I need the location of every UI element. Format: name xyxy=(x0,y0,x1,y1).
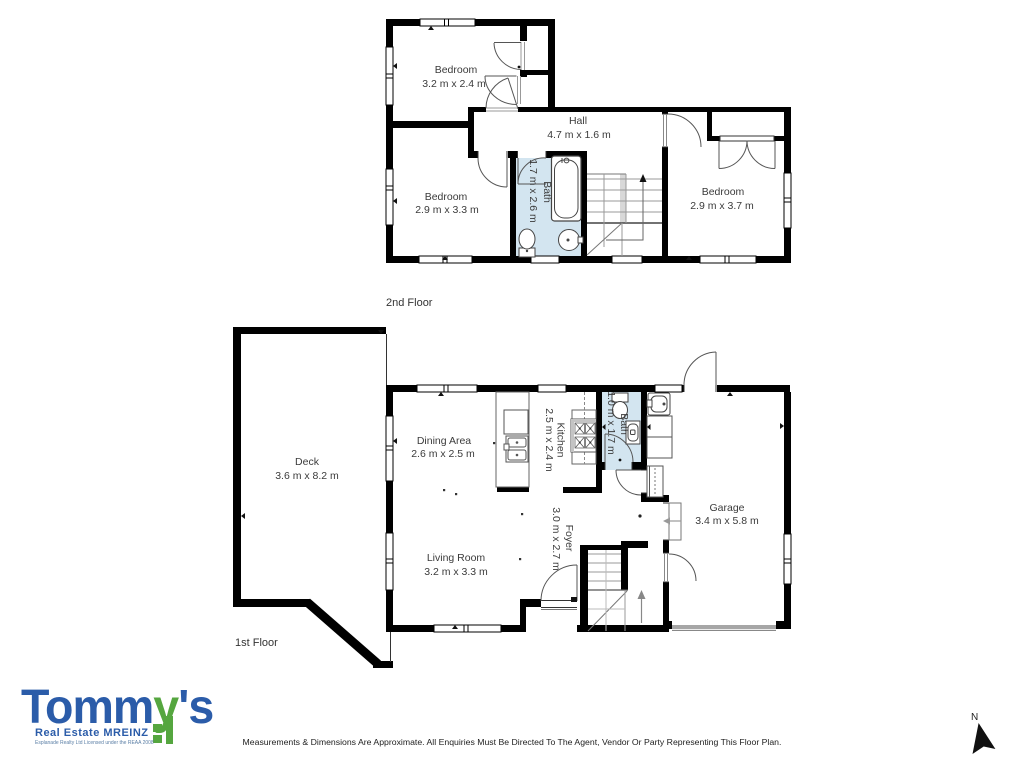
svg-text:1.0 m x 1.7 m: 1.0 m x 1.7 m xyxy=(605,391,617,455)
svg-text:2nd Floor: 2nd Floor xyxy=(386,297,433,309)
svg-text:Measurements & Dimensions Are: Measurements & Dimensions Are Approximat… xyxy=(243,737,782,747)
svg-text:Dining Area: Dining Area xyxy=(417,435,471,447)
svg-text:2.5 m x 2.4 m: 2.5 m x 2.4 m xyxy=(543,408,555,472)
svg-text:Garage: Garage xyxy=(709,502,744,514)
svg-text:3.6 m x 8.2 m: 3.6 m x 8.2 m xyxy=(275,470,339,482)
svg-text:Hall: Hall xyxy=(569,115,587,127)
svg-text:1st Floor: 1st Floor xyxy=(235,637,278,649)
svg-text:Esplanade Realty Ltd Licensed: Esplanade Realty Ltd Licensed under the … xyxy=(35,740,154,746)
svg-text:Bedroom: Bedroom xyxy=(702,186,745,198)
svg-text:Kitchen: Kitchen xyxy=(555,422,567,457)
svg-text:N: N xyxy=(971,712,978,723)
svg-text:1.7 m x 2.6 m: 1.7 m x 2.6 m xyxy=(527,159,539,223)
svg-text:Bedroom: Bedroom xyxy=(425,191,468,203)
svg-text:Deck: Deck xyxy=(295,456,320,468)
svg-text:4.7 m x 1.6 m: 4.7 m x 1.6 m xyxy=(547,129,611,141)
svg-text:2.9 m x 3.3 m: 2.9 m x 3.3 m xyxy=(415,204,479,216)
svg-text:Bath: Bath xyxy=(541,181,553,203)
svg-text:Bedroom: Bedroom xyxy=(435,64,478,76)
svg-text:Bath: Bath xyxy=(618,413,630,435)
svg-text:3.2 m x 2.4 m: 3.2 m x 2.4 m xyxy=(422,78,486,90)
svg-text:2.9 m x 3.7 m: 2.9 m x 3.7 m xyxy=(690,200,754,212)
svg-text:Living Room: Living Room xyxy=(427,552,486,564)
svg-text:3.4 m x 5.8 m: 3.4 m x 5.8 m xyxy=(695,515,759,527)
svg-text:Real Estate MREINZ: Real Estate MREINZ xyxy=(35,727,149,739)
svg-text:2.6 m x 2.5 m: 2.6 m x 2.5 m xyxy=(411,448,475,460)
svg-text:3.0 m x 2.7 m: 3.0 m x 2.7 m xyxy=(550,507,562,571)
svg-text:3.2 m x 3.3 m: 3.2 m x 3.3 m xyxy=(424,566,488,578)
svg-text:Foyer: Foyer xyxy=(563,525,575,552)
